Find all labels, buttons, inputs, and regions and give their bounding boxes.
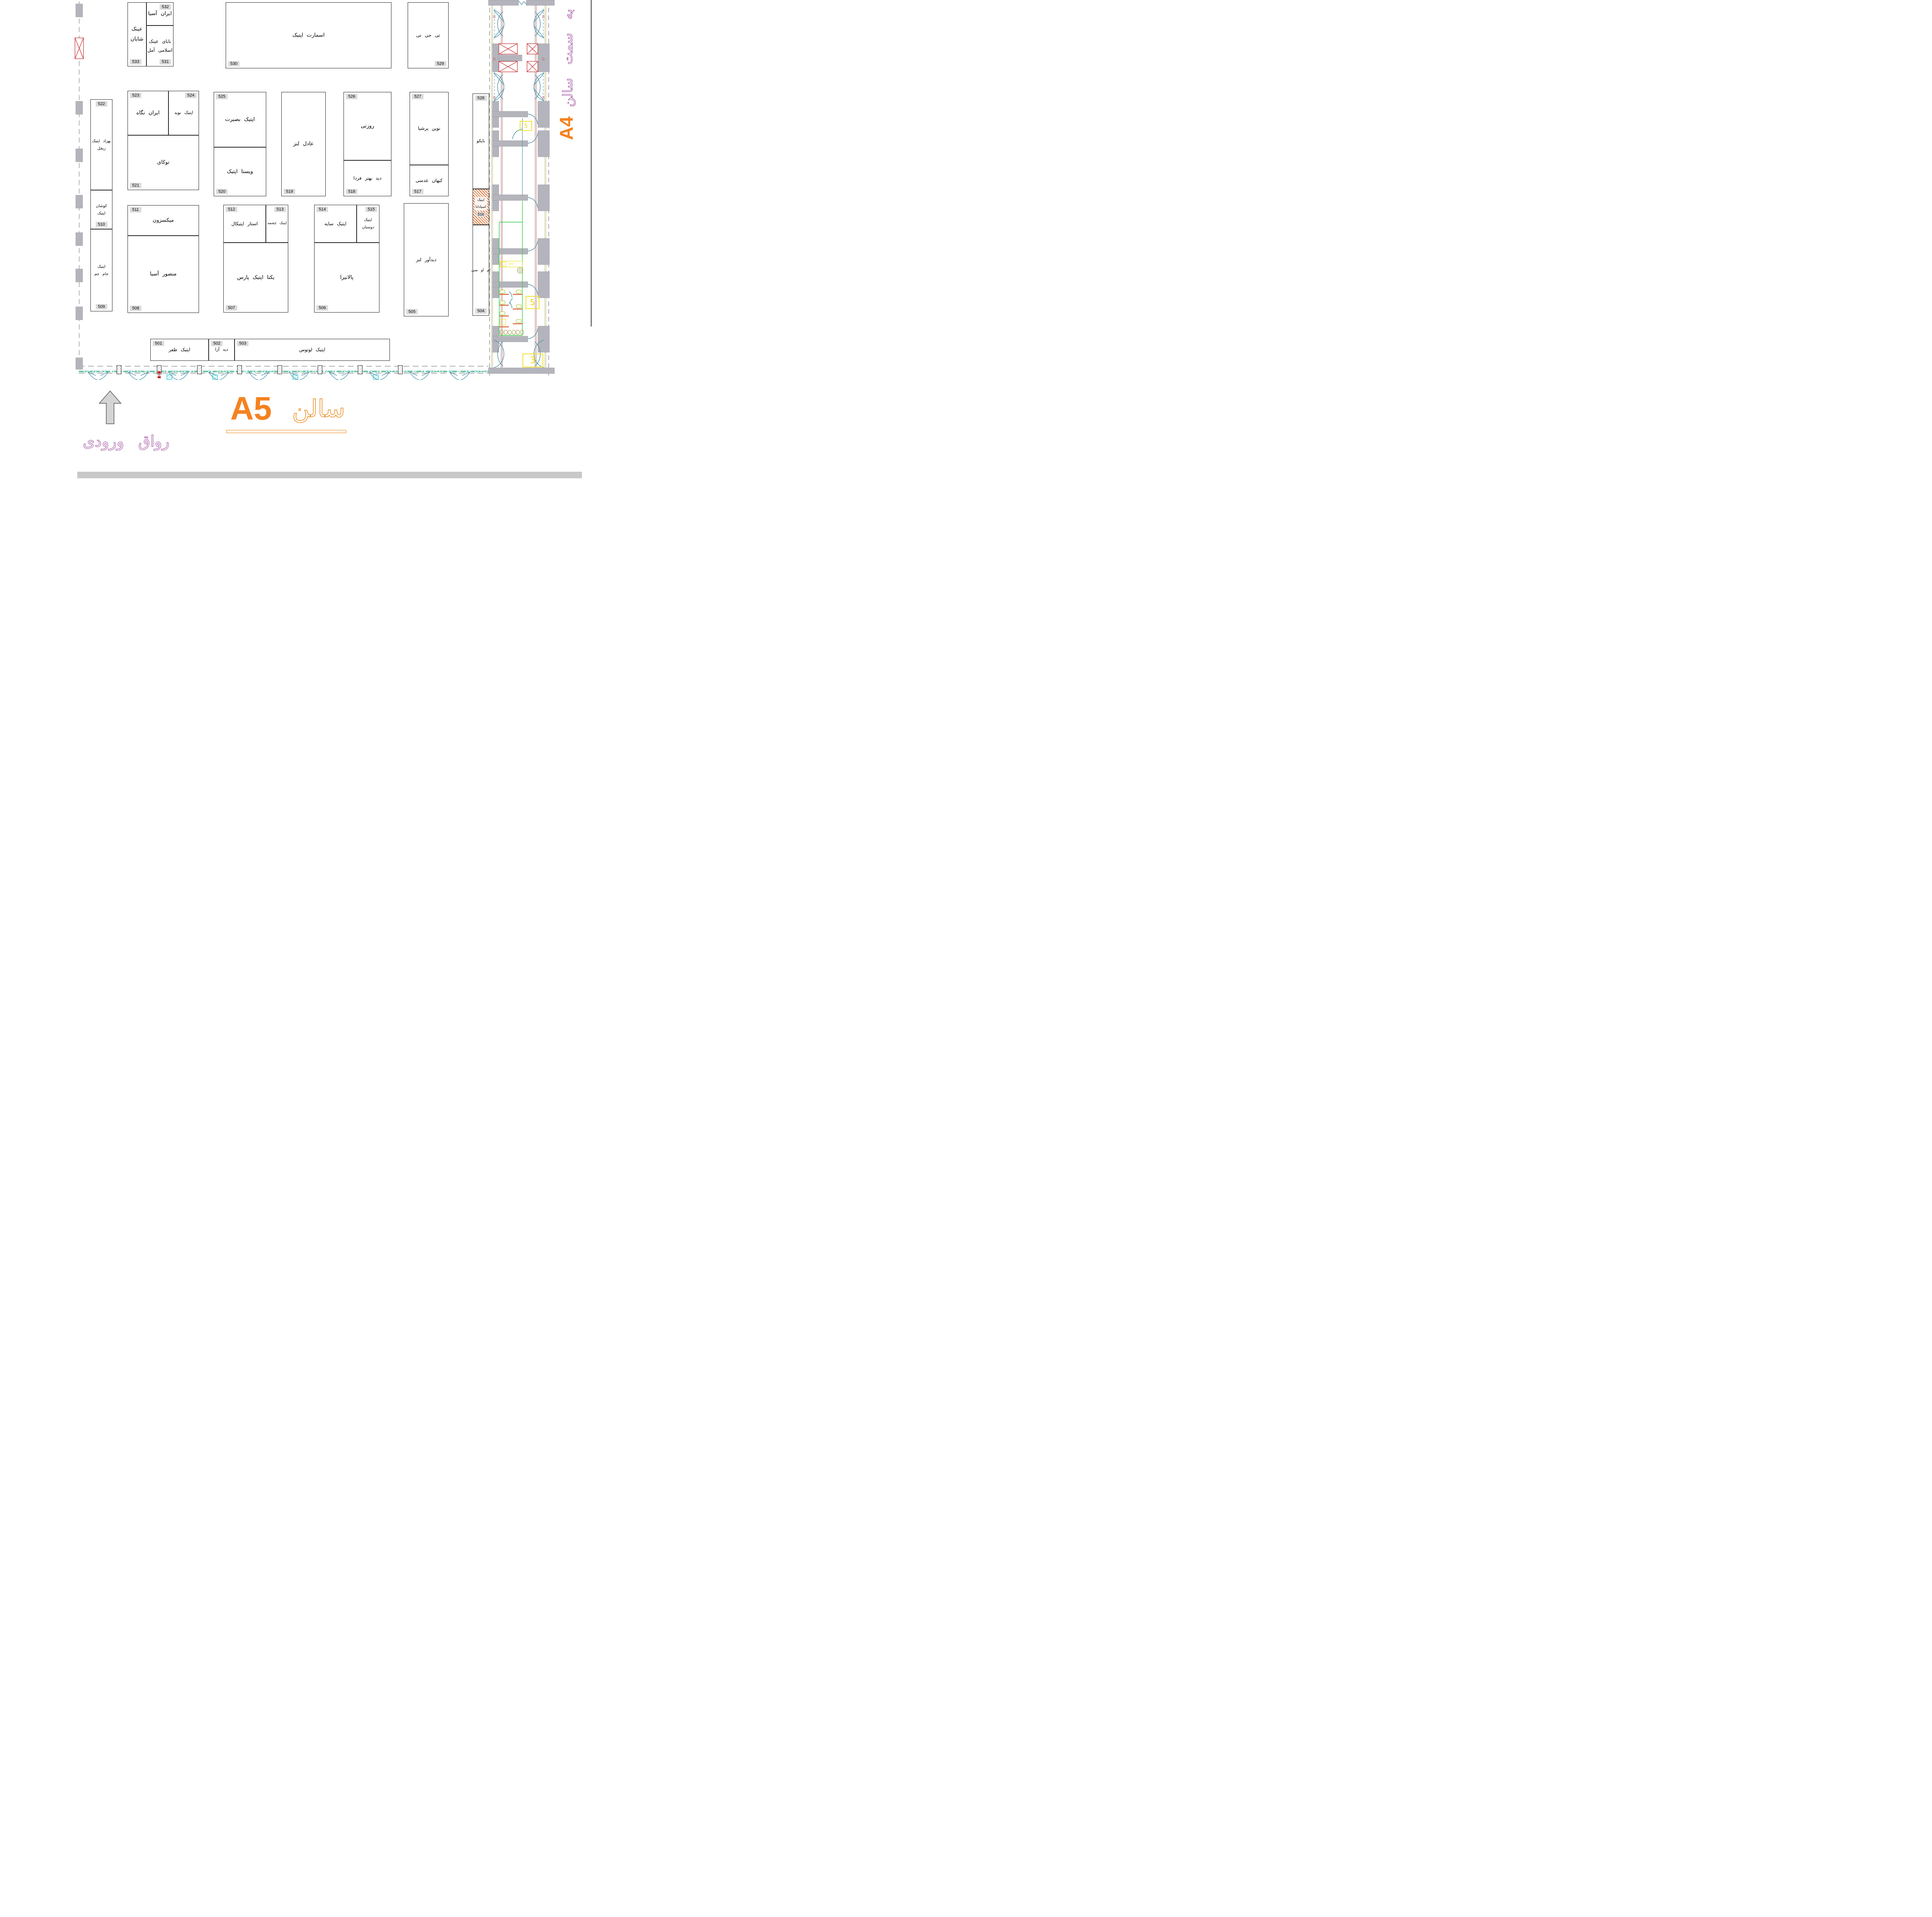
booth-name: ایران نگاه	[136, 108, 160, 118]
booth-name: دید بهتر فردا	[354, 174, 382, 183]
booth-number: 504	[475, 308, 486, 314]
booth-name: اپتیک اسپادانا	[475, 197, 487, 210]
corridor-marker-3: 3	[522, 353, 543, 367]
booth-509[interactable]: اپتیک جام جم509	[90, 229, 112, 311]
booth-name: ایران آسیا	[148, 9, 172, 19]
booth-529[interactable]: تی جی تی529	[408, 2, 449, 68]
floorplan-hall-a5: عینک شایان533 ایران آسیا532 بابای عینک ا…	[0, 0, 678, 479]
hall-title-farsi: سالن	[292, 393, 345, 425]
booth-number: 518	[346, 189, 357, 194]
booth-501[interactable]: اپتیک ظفر501	[150, 339, 209, 361]
booth-number: 529	[435, 61, 446, 66]
booth-number: 525	[216, 94, 228, 99]
booth-507[interactable]: یکتا اپتیک پارس507	[223, 243, 288, 313]
booth-name: اپتیک لوتوس	[299, 345, 325, 354]
booth-number: 513	[274, 207, 286, 212]
booth-name: دیدآور لنز	[416, 255, 437, 264]
booth-name: منصور آسیا	[150, 269, 177, 279]
booth-522[interactable]: بهزاد اپتیک ریچل522	[90, 99, 112, 190]
direction-to-hall-label: به سمت سالن	[560, 9, 576, 107]
booth-name: اپتیک چشمه	[267, 220, 287, 227]
booth-number: 517	[412, 189, 423, 194]
booth-528[interactable]: باپکو528	[473, 93, 489, 189]
booth-name: عینک شایان	[128, 24, 146, 44]
booth-number: 532	[160, 4, 171, 10]
booth-number: 506	[316, 305, 328, 311]
booth-number: 510	[95, 222, 107, 227]
booth-name: بهزاد اپتیک ریچل	[92, 138, 111, 152]
booth-name: اپتیک بصیرت	[225, 115, 255, 125]
left-boundary-wall	[73, 0, 84, 377]
hall-title-latin: A5	[230, 392, 272, 425]
south-wall-entrances	[77, 361, 495, 382]
bottom-wall-bar	[77, 472, 582, 478]
entrance-arrow-icon	[99, 391, 122, 424]
booth-number: 502	[211, 341, 223, 346]
adjacent-hall-wall-line	[591, 0, 592, 326]
booth-number: 533	[130, 59, 141, 65]
booth-532[interactable]: ایران آسیا532	[146, 2, 173, 25]
booth-520[interactable]: ویستا اپتیک520	[214, 147, 266, 196]
booth-number: 521	[130, 183, 141, 188]
booth-number: 531	[160, 59, 171, 65]
booth-508[interactable]: منصور آسیا508	[128, 236, 199, 313]
booth-517[interactable]: کیهان عدسی517	[410, 165, 449, 196]
booth-name: میکسزون	[153, 216, 174, 226]
booth-number: 501	[153, 341, 164, 346]
booth-513[interactable]: اپتیک چشمه513	[266, 205, 288, 243]
corridor-marker-5a: 5	[520, 121, 532, 131]
booth-number: 527	[412, 94, 423, 99]
booth-530[interactable]: اسمارت اپتیک530	[226, 2, 391, 68]
booth-number: 530	[228, 61, 240, 66]
booth-name: اپتیک سایه	[325, 219, 347, 228]
entrance-label: رواق ورودی	[83, 433, 170, 450]
booth-533[interactable]: عینک شایان533	[128, 2, 146, 66]
adjacent-hall-label: A4	[556, 116, 578, 140]
booth-name: اپتیک جام جم	[94, 263, 108, 278]
booth-number: 505	[406, 309, 418, 314]
booth-515[interactable]: اپتیک دوستان515	[357, 205, 379, 243]
booth-number: 509	[95, 304, 107, 309]
booth-name: کیهان عدسی	[416, 176, 443, 185]
booth-number: 512	[226, 207, 237, 212]
booth-name: روزتی	[361, 121, 374, 131]
booth-527[interactable]: نوین پرشیا527	[410, 92, 449, 165]
hall-title-underline	[226, 430, 346, 433]
booth-524[interactable]: اپتیک نوید524	[168, 91, 199, 135]
booth-number: 507	[226, 305, 237, 311]
corridor-marker-5b: 5	[526, 296, 539, 309]
booth-name: کوشان اپتیک	[96, 202, 107, 217]
booth-name: توکای	[157, 158, 170, 168]
booth-514[interactable]: اپتیک سایه514	[314, 205, 357, 243]
booth-name: ویستا اپتیک	[227, 167, 253, 177]
booth-511[interactable]: میکسزون511	[128, 205, 199, 236]
booth-name: ام او سی	[471, 267, 491, 274]
booth-name: دید آرا	[215, 346, 228, 354]
booth-name: اپتیک ظفر	[169, 345, 190, 354]
booth-name: اپتیک نوید	[174, 109, 193, 117]
booth-name: پالانیرا	[340, 273, 354, 283]
corridor-architecture	[488, 0, 555, 377]
booth-name: باپکو	[477, 137, 485, 145]
booth-521[interactable]: توکای521	[128, 135, 199, 190]
booth-523[interactable]: ایران نگاه523	[128, 91, 168, 135]
booth-name: اسمارت اپتیک	[293, 31, 325, 41]
booth-number: 526	[346, 94, 357, 99]
booth-name: نوین پرشیا	[418, 124, 440, 133]
booth-number: 511	[130, 207, 141, 212]
booth-name: تی جی تی	[416, 31, 440, 40]
booth-504[interactable]: ام او سی504	[473, 225, 489, 316]
booth-519[interactable]: عادل لنز519	[281, 92, 326, 196]
booth-526[interactable]: روزتی526	[344, 92, 391, 160]
booth-525[interactable]: اپتیک بصیرت525	[214, 92, 266, 147]
booth-518[interactable]: دید بهتر فردا518	[344, 160, 391, 196]
booth-name: استار اپتیکال	[231, 219, 258, 228]
booth-name: عادل لنز	[293, 139, 314, 149]
booth-number: 528	[475, 95, 486, 101]
booth-516[interactable]: اپتیک اسپادانا516	[473, 189, 489, 225]
booth-number: 515	[366, 207, 377, 212]
booth-number: 508	[130, 306, 141, 311]
booth-number: 523	[130, 93, 141, 98]
booth-number: 516	[476, 212, 486, 217]
booth-503[interactable]: اپتیک لوتوس503	[235, 339, 390, 361]
booth-name: بابای عینک اسلامی آمل	[148, 37, 173, 55]
booth-512[interactable]: استار اپتیکال512	[223, 205, 266, 243]
booth-502[interactable]: دید آرا502	[209, 339, 235, 361]
booth-531[interactable]: بابای عینک اسلامی آمل531	[146, 25, 173, 66]
booth-number: 503	[237, 341, 248, 346]
booth-number: 519	[284, 189, 295, 194]
booth-number: 514	[316, 207, 328, 212]
booth-number: 522	[95, 101, 107, 107]
booth-505[interactable]: دیدآور لنز505	[404, 203, 449, 316]
booth-506[interactable]: پالانیرا506	[314, 243, 379, 313]
booth-name: اپتیک دوستان	[362, 216, 374, 231]
booth-number: 520	[216, 189, 228, 194]
booth-number: 524	[185, 93, 197, 98]
booth-510[interactable]: کوشان اپتیک510	[90, 190, 112, 229]
booth-name: یکتا اپتیک پارس	[237, 273, 275, 283]
